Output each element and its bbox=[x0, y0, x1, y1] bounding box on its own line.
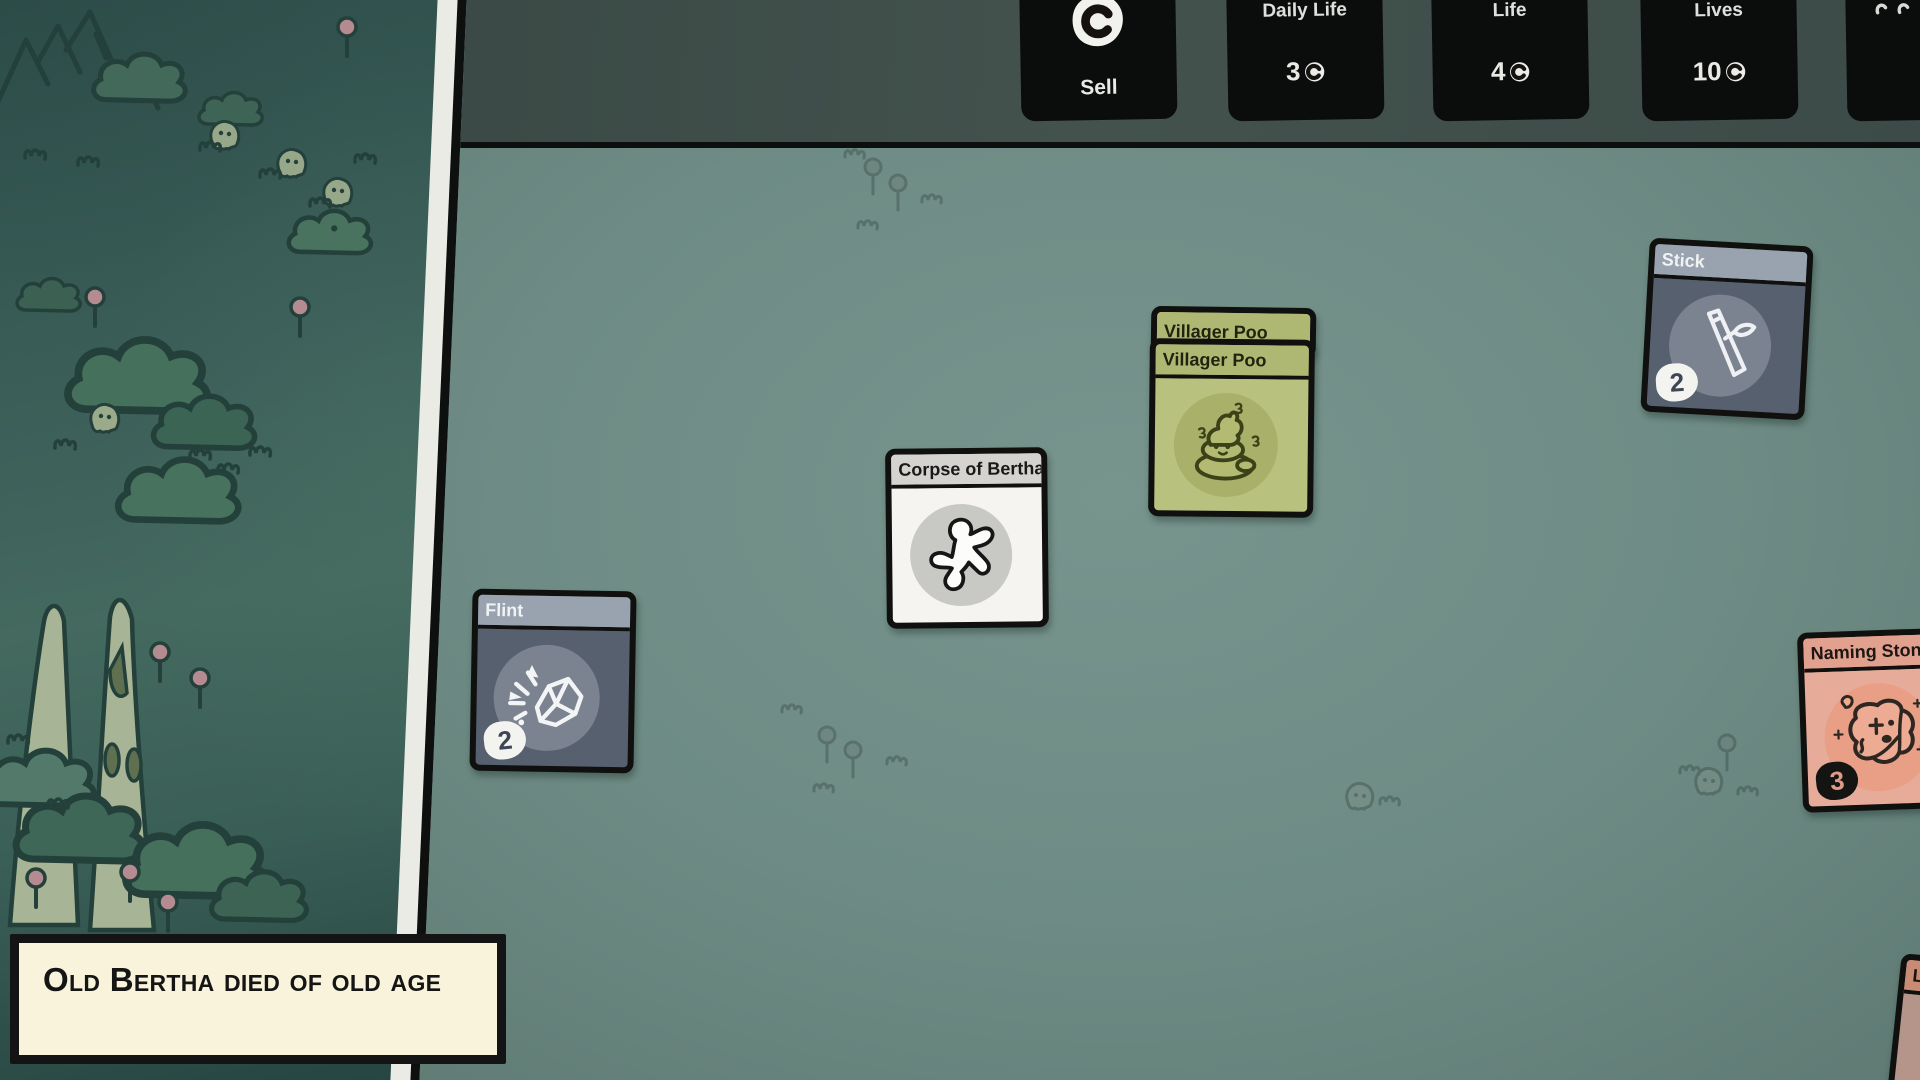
coin-icon bbox=[1724, 60, 1746, 82]
card-art: 2 bbox=[1647, 278, 1794, 414]
card-art: 3 bbox=[1804, 668, 1920, 807]
coin-icon bbox=[1303, 60, 1325, 82]
coin-icon bbox=[1508, 60, 1530, 82]
notification-box: Old Bertha died of old age bbox=[10, 934, 506, 1064]
pack-partial[interactable] bbox=[1845, 0, 1920, 121]
body-outline-icon bbox=[914, 508, 1009, 603]
game-screen: Flint 2 Corpse o bbox=[0, 0, 1920, 1080]
pack-price: 3 bbox=[1227, 55, 1384, 89]
notification-message: Old Bertha died of old age bbox=[43, 959, 489, 1002]
card-art bbox=[1154, 378, 1296, 511]
card-title: Flint bbox=[478, 595, 631, 632]
poo-icon bbox=[1177, 396, 1274, 493]
card-stick[interactable]: Stick 2 bbox=[1640, 238, 1813, 421]
card-art: 2 bbox=[476, 629, 618, 767]
card-villager-poo[interactable]: Villager Poo bbox=[1148, 338, 1315, 518]
ruin-spires-doodle bbox=[0, 600, 306, 987]
pack-lives[interactable]: Lives 10 bbox=[1640, 0, 1799, 121]
card-title: Naming Stone bbox=[1803, 633, 1920, 672]
card-art bbox=[1893, 993, 1920, 1080]
card-corpse-of-bertha[interactable]: Corpse of Bertha bbox=[885, 447, 1049, 629]
pack-price: 4 bbox=[1432, 55, 1589, 89]
coin-icon bbox=[1068, 0, 1127, 51]
sell-pack-button[interactable]: Sell bbox=[1019, 0, 1178, 121]
card-art bbox=[891, 487, 1030, 622]
partial-pack-marks bbox=[1873, 0, 1920, 19]
pack-life[interactable]: Life 4 bbox=[1431, 0, 1590, 121]
pack-name: Life bbox=[1431, 0, 1587, 23]
map-decorations bbox=[0, 0, 460, 1080]
card-partial-bottom-right[interactable]: Lu bbox=[1885, 953, 1920, 1080]
world-map-edge bbox=[0, 0, 458, 1080]
pack-daily-life[interactable]: Daily Life 3 bbox=[1226, 0, 1385, 121]
card-naming-stone[interactable]: Naming Stone bbox=[1797, 627, 1920, 813]
pack-name: Daily Life bbox=[1226, 0, 1382, 23]
pack-price: 10 bbox=[1641, 55, 1798, 89]
card-title: Villager Poo bbox=[1156, 344, 1309, 380]
card-flint[interactable]: Flint 2 bbox=[469, 589, 636, 774]
sell-label: Sell bbox=[1021, 75, 1177, 102]
card-title: Corpse of Bertha bbox=[891, 453, 1041, 489]
pack-name: Lives bbox=[1640, 0, 1796, 23]
